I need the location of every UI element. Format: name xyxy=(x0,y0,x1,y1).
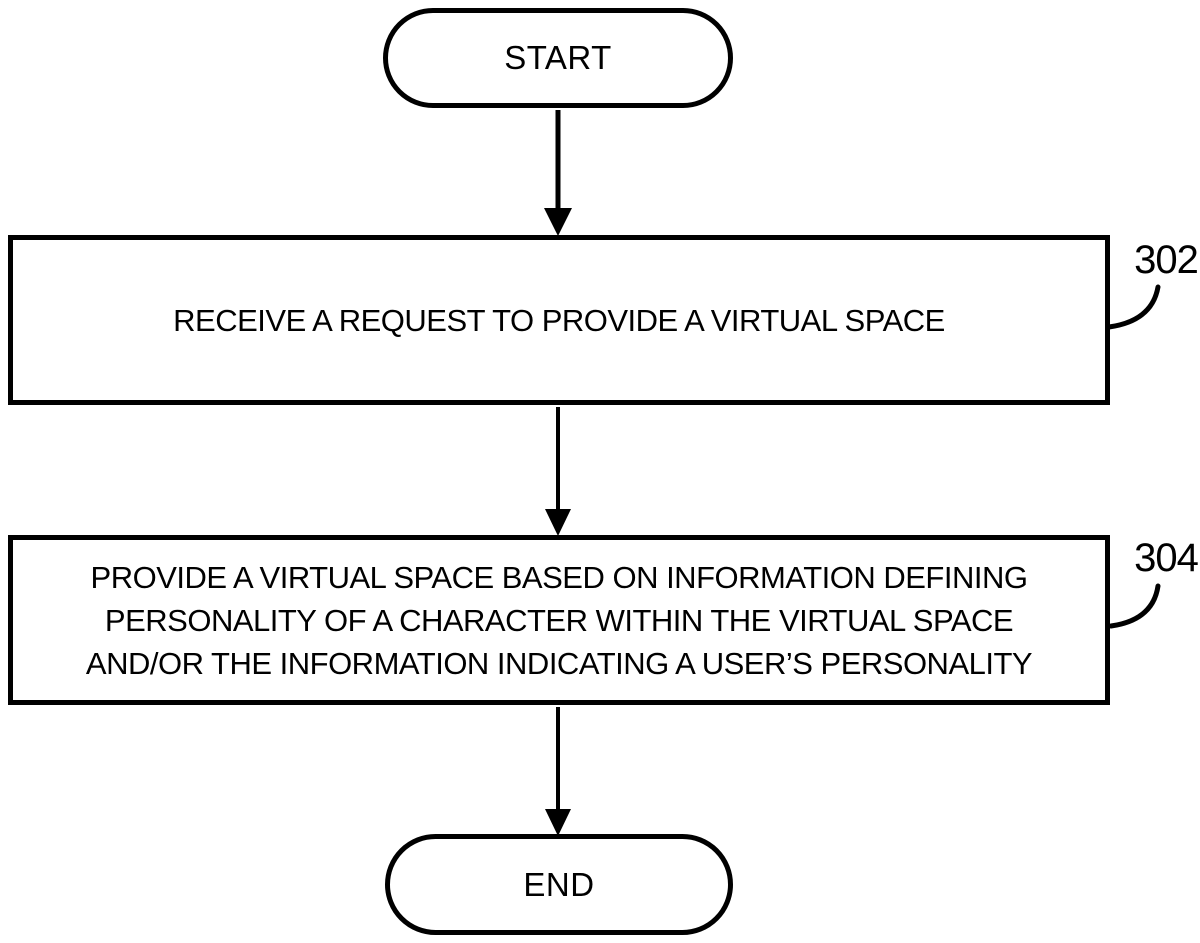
process-box-304: PROVIDE A VIRTUAL SPACE BASED ON INFORMA… xyxy=(8,535,1110,705)
process-304-line-2: PERSONALITY OF A CHARACTER WITHIN THE VI… xyxy=(105,599,1013,642)
arrow-start-to-302 xyxy=(544,110,572,236)
start-node: START xyxy=(383,8,733,108)
leader-curve-302 xyxy=(1109,287,1158,327)
arrow-304-to-end xyxy=(545,707,571,836)
process-304-line-1: PROVIDE A VIRTUAL SPACE BASED ON INFORMA… xyxy=(91,556,1028,599)
connector-layer xyxy=(0,0,1200,943)
ref-label-304: 304 xyxy=(1134,536,1198,581)
end-node: END xyxy=(385,834,733,935)
leader-curve-304 xyxy=(1111,586,1158,626)
process-302-text: RECEIVE A REQUEST TO PROVIDE A VIRTUAL S… xyxy=(173,299,945,342)
end-label: END xyxy=(523,866,594,904)
start-label: START xyxy=(504,39,612,77)
flowchart-canvas: START RECEIVE A REQUEST TO PROVIDE A VIR… xyxy=(0,0,1200,943)
arrow-302-to-304 xyxy=(545,407,571,536)
process-304-line-3: AND/OR THE INFORMATION INDICATING A USER… xyxy=(86,642,1032,685)
ref-label-302: 302 xyxy=(1134,238,1198,283)
process-box-302: RECEIVE A REQUEST TO PROVIDE A VIRTUAL S… xyxy=(8,235,1110,405)
